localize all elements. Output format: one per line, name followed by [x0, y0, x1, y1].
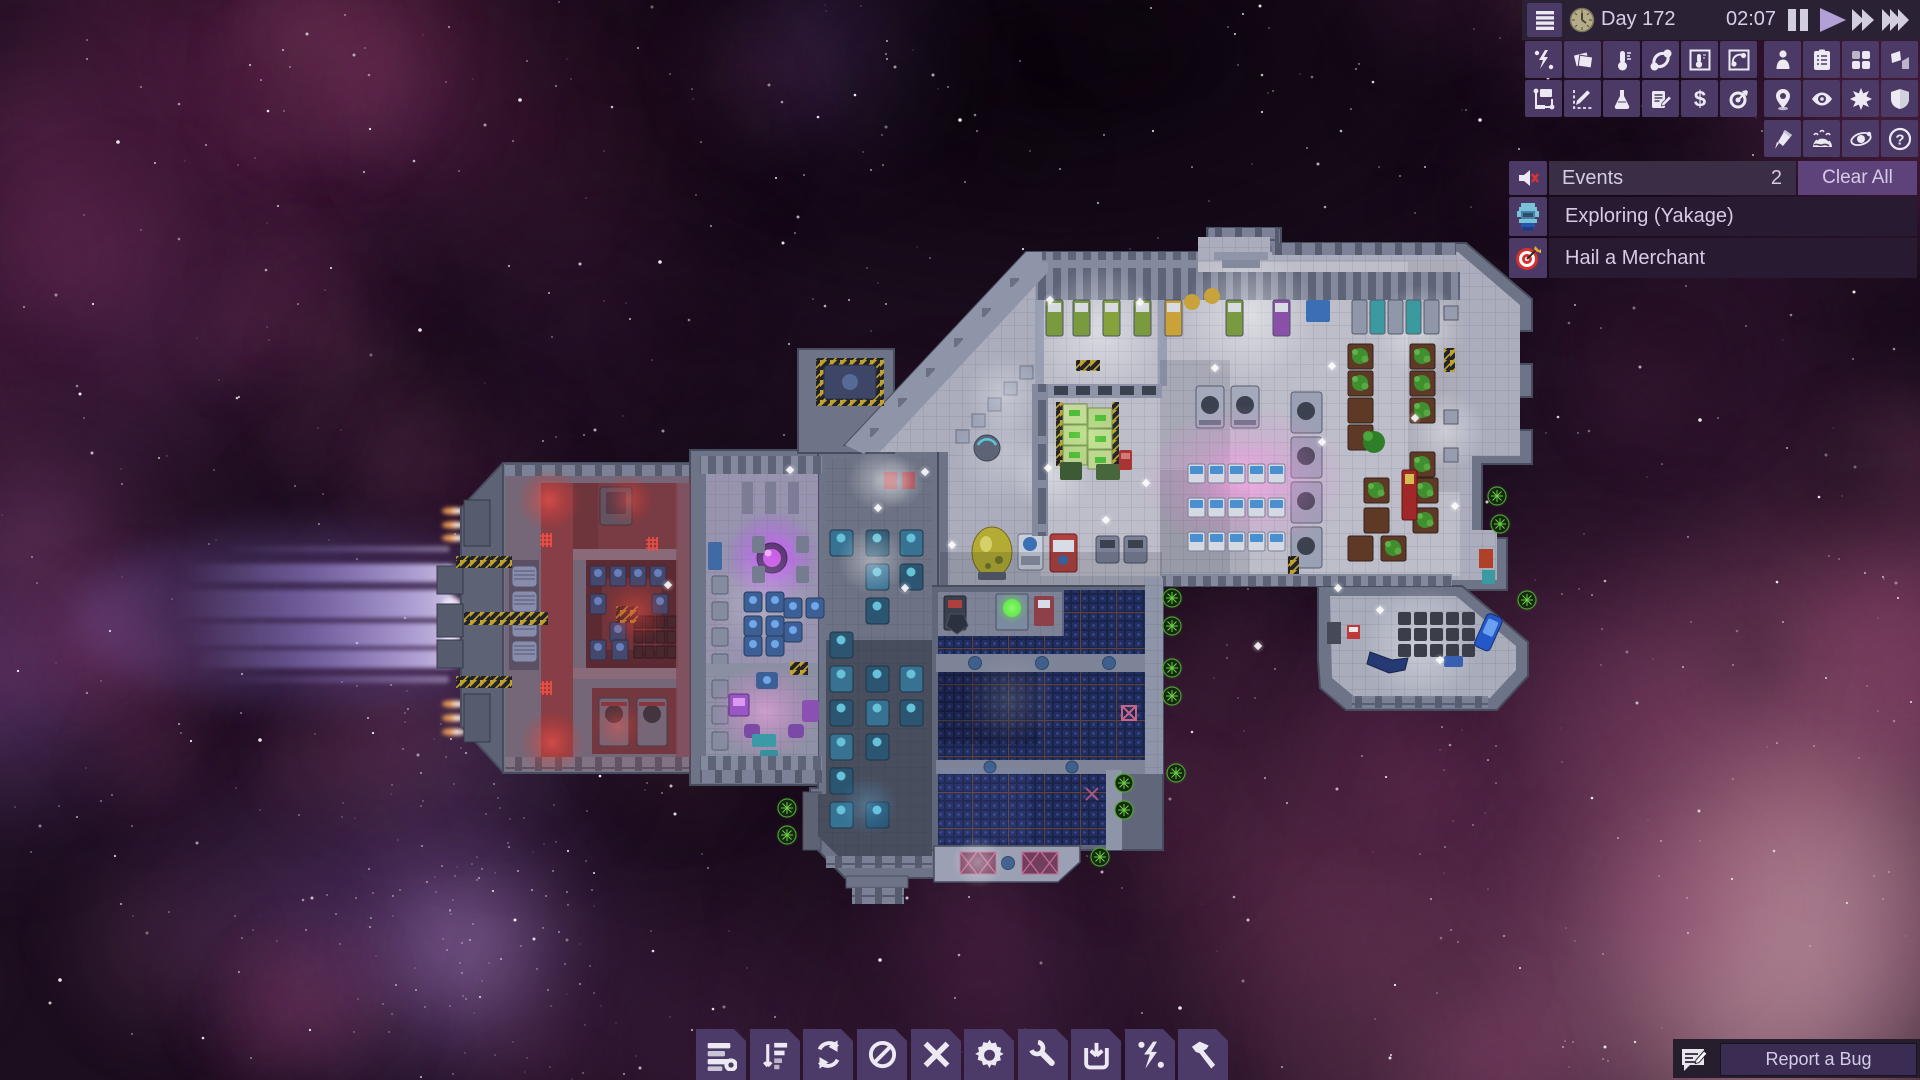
svg-text:?: ? [1895, 131, 1904, 148]
svg-text:$: $ [1693, 87, 1705, 111]
